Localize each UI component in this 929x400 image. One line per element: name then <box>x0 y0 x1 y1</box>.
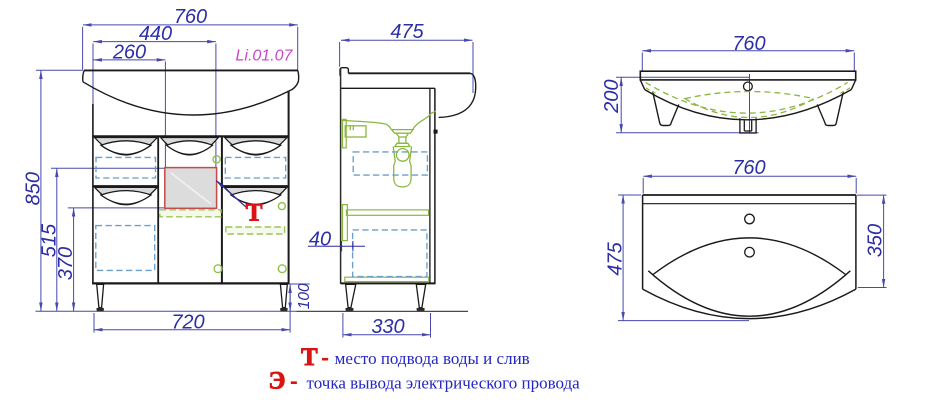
svg-text:Т: Т <box>246 200 263 227</box>
svg-text:760: 760 <box>732 33 765 55</box>
svg-text:720: 720 <box>171 312 204 334</box>
svg-text:200: 200 <box>601 80 623 114</box>
svg-text:475: 475 <box>390 21 424 43</box>
svg-text:760: 760 <box>732 157 765 179</box>
svg-text:260: 260 <box>112 42 146 64</box>
svg-text:100: 100 <box>296 283 313 309</box>
svg-text:Э-: Э- <box>269 368 298 395</box>
svg-text:Li.01.07: Li.01.07 <box>236 48 294 65</box>
svg-text:330: 330 <box>371 316 404 338</box>
svg-text:Т-: Т- <box>301 344 328 371</box>
svg-text:850: 850 <box>22 172 44 205</box>
svg-text:350: 350 <box>864 224 886 257</box>
svg-text:475: 475 <box>605 241 627 275</box>
svg-text:370: 370 <box>55 247 77 280</box>
svg-text:место подвода воды и слив: место подвода воды и слив <box>335 349 530 368</box>
svg-text:760: 760 <box>174 6 207 28</box>
svg-text:точка вывода электрического пр: точка вывода электрического провода <box>307 373 581 392</box>
svg-text:40: 40 <box>309 228 331 250</box>
